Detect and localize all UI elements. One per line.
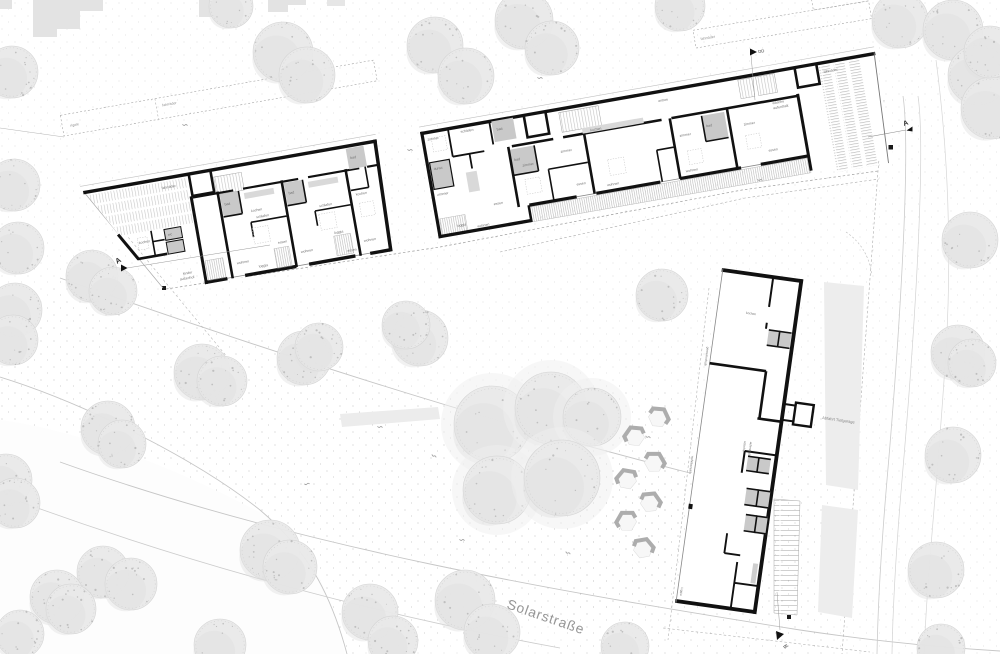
svg-text:DD: DD: [758, 48, 765, 54]
